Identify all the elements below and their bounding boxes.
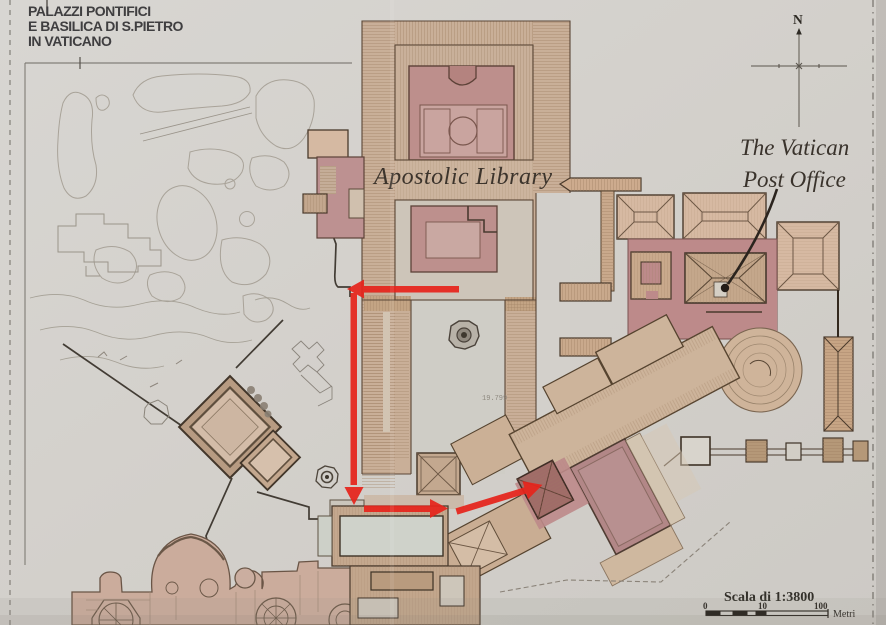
svg-text:The Vatican: The Vatican — [740, 135, 849, 160]
svg-text:19.799: 19.799 — [482, 395, 507, 403]
svg-text:E BASILICA DI S.PIETRO: E BASILICA DI S.PIETRO — [28, 18, 184, 34]
svg-text:Post Office: Post Office — [742, 167, 846, 192]
svg-text:PALAZZI PONTIFICI: PALAZZI PONTIFICI — [28, 3, 151, 19]
svg-text:N: N — [793, 12, 803, 27]
svg-text:IN VATICANO: IN VATICANO — [28, 33, 112, 49]
svg-text:Apostolic Library: Apostolic Library — [372, 164, 553, 190]
